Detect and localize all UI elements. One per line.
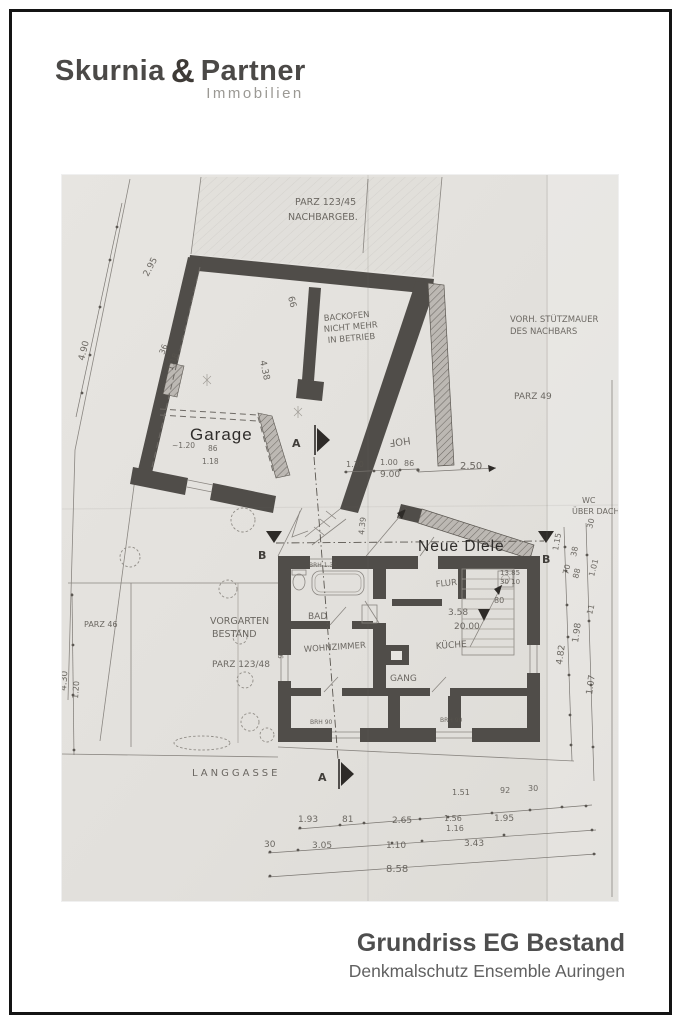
company-logo: Skurnia & Partner Immobilien	[55, 52, 306, 102]
page-subtitle: Denkmalschutz Ensemble Auringen	[349, 961, 625, 982]
plan-label: 1.51	[452, 788, 470, 797]
plan-label: 81	[342, 815, 353, 825]
plan-label: 30	[264, 840, 276, 850]
floorplan-drawing: PARZ 123/45NACHBARGEB.2.954.90361.18664.…	[62, 175, 618, 901]
document-page: Skurnia & Partner Immobilien	[0, 0, 681, 1024]
plan-label: 2.50	[460, 461, 482, 472]
plan-label: PARZ 49	[514, 392, 552, 402]
plan-label: 80	[494, 596, 504, 605]
plan-label: BESTAND	[212, 629, 257, 640]
plan-label: GANG	[390, 674, 417, 684]
plan-label: 1.18	[202, 457, 219, 466]
plan-label: 86	[404, 459, 414, 468]
plan-label: 20.00	[454, 622, 480, 632]
plan-label: NACHBARGEB.	[288, 212, 358, 223]
plan-label: 86	[208, 444, 218, 453]
plan-label: 1.93	[298, 815, 318, 825]
plan-label: B	[542, 553, 550, 566]
logo-name-1: Skurnia	[55, 55, 165, 88]
plan-label: 30 10	[500, 578, 520, 586]
plan-label: LANGGASSE	[192, 768, 280, 779]
plan-label: 2.65	[392, 816, 412, 826]
plan-label: BRH 1.35	[309, 562, 337, 569]
plan-label: 1.00	[380, 458, 398, 467]
plan-label: VORGARTEN	[210, 616, 269, 627]
plan-label: BRH 90	[440, 717, 463, 724]
plan-label: 30	[528, 784, 538, 793]
plan-label: PARZ 123/48	[212, 660, 270, 670]
plan-label: Neue Diele	[418, 538, 505, 555]
plan-label: 4.39	[357, 517, 368, 536]
plan-label: 9.00	[380, 470, 400, 480]
plan-label: 1.30	[346, 460, 364, 469]
plan-label: 4.30	[62, 670, 70, 691]
plan-label: PARZ 123/45	[295, 197, 356, 208]
plan-label: 90	[277, 649, 286, 659]
page-title: Grundriss EG Bestand	[349, 929, 625, 958]
logo-wordmark: Skurnia & Partner	[55, 52, 306, 88]
plan-label: 13.85	[500, 569, 520, 577]
plan-label: 3.58	[448, 608, 468, 618]
title-block: Grundriss EG Bestand Denkmalschutz Ensem…	[349, 929, 625, 982]
plan-label: PARZ 46	[84, 620, 118, 629]
plan-label: BAD	[308, 612, 327, 622]
plan-label: 1.56	[444, 814, 462, 823]
plan-label: 3.05	[312, 841, 332, 851]
plan-label: A	[292, 437, 301, 450]
plan-label: KÜCHE	[435, 639, 467, 652]
plan-label: WC	[582, 496, 596, 505]
plan-label: 1.95	[494, 814, 514, 824]
plan-label: DES NACHBARS	[510, 327, 577, 337]
plan-label: 1.10	[386, 841, 406, 851]
logo-ampersand-icon: &	[171, 54, 195, 87]
plan-label: ÜBER DACH	[572, 506, 618, 516]
plan-label: 1.20	[71, 681, 81, 699]
logo-name-2: Partner	[201, 55, 306, 88]
plan-label: A	[318, 771, 327, 784]
plan-label: 1.16	[446, 824, 464, 833]
plan-label: Garage	[190, 425, 253, 444]
plan-label: BRH 90	[310, 719, 333, 726]
floorplan-scan: PARZ 123/45NACHBARGEB.2.954.90361.18664.…	[62, 175, 618, 901]
plan-label: B	[258, 549, 266, 562]
plan-label: VORH. STÜTZMAUER	[510, 314, 598, 325]
plan-label: 3.43	[464, 839, 484, 849]
plan-label: 92	[500, 786, 510, 795]
plan-label: 8.58	[386, 864, 408, 875]
